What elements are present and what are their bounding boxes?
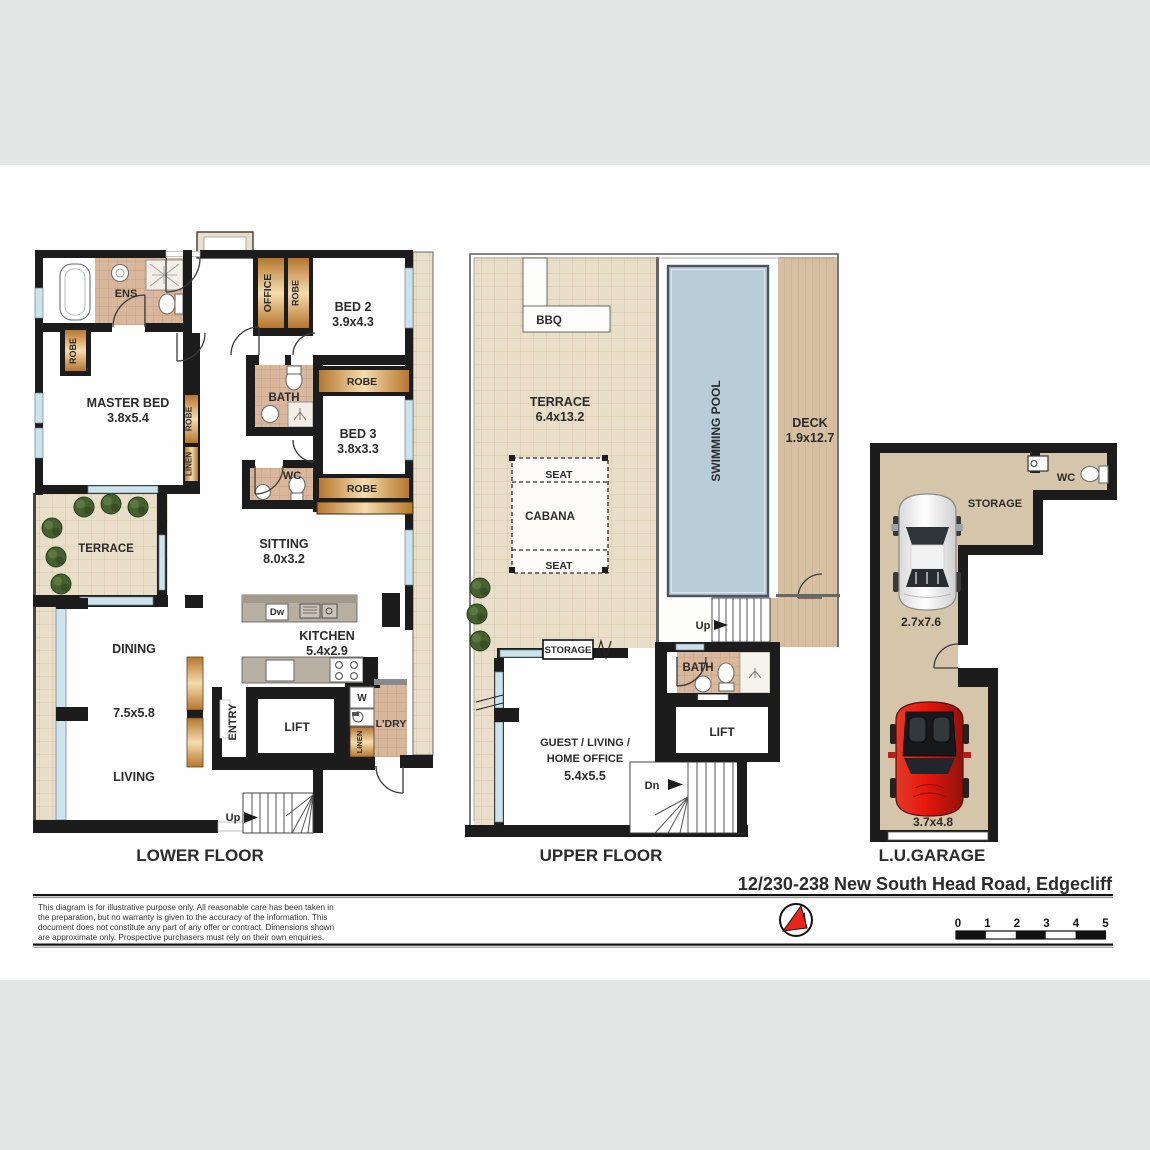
lower-floor-title: LOWER FLOOR xyxy=(136,846,263,865)
hall-robe-label: ROBE xyxy=(184,406,194,431)
sitting-dims: 8.0x3.2 xyxy=(263,552,305,566)
lower-terrace-label: TERRACE xyxy=(78,543,134,555)
laundry-door-arc xyxy=(376,766,403,793)
disclaimer-line-3: document does not constitute any part of… xyxy=(38,923,335,932)
garage-space1-dims: 2.7x7.6 xyxy=(901,615,941,629)
bath-basin xyxy=(262,406,279,423)
bed3-robe-label: ROBE xyxy=(347,483,377,495)
wc-label: WC xyxy=(283,470,301,482)
bath-door-arc xyxy=(293,333,315,355)
lower-stairs xyxy=(243,793,313,833)
floorplan-drawing: ENS MASTER BED 3.8x5.4 ROBE ROBE LINEN O… xyxy=(0,0,1150,1150)
master-bed-dims: 3.8x5.4 xyxy=(107,411,149,425)
dryer xyxy=(350,709,374,726)
address: 12/230-238 New South Head Road, Edgeclif… xyxy=(738,874,1113,894)
floorplan-page: { "header": { "address": "12/230-238 New… xyxy=(0,0,1150,1150)
bed2-label: BED 2 xyxy=(335,300,372,314)
white-car xyxy=(891,494,963,610)
upper-terrace-label: TERRACE xyxy=(530,395,590,409)
lower-lift-label: LIFT xyxy=(284,720,310,734)
fridge xyxy=(266,660,294,681)
washer-label: W xyxy=(357,693,367,704)
cooktop xyxy=(330,658,363,682)
garage-plan: WC STORAGE 2.7x7.6 3.7x4.8 L.U.GARAGE xyxy=(870,443,1117,865)
scale-tick-2: 2 xyxy=(1014,918,1020,930)
ens-basin xyxy=(112,265,129,282)
rule-bottom xyxy=(33,944,1113,946)
bed2-dims: 3.9x4.3 xyxy=(332,315,374,329)
upper-floor-title: UPPER FLOOR xyxy=(540,846,663,865)
north-compass-icon: N xyxy=(780,904,812,936)
upper-lift-label: LIFT xyxy=(709,725,735,739)
upper-terrace-dims: 6.4x13.2 xyxy=(536,410,585,424)
island-cabinet xyxy=(187,657,203,710)
wc-basin xyxy=(256,485,271,500)
master-bed-label: MASTER BED xyxy=(87,396,170,410)
bathtub xyxy=(60,264,90,320)
bed3-cabinet xyxy=(317,502,413,514)
rule-top xyxy=(33,894,1113,896)
garage-title: L.U.GARAGE xyxy=(879,846,986,865)
red-car xyxy=(888,702,971,816)
hall-linen-label: LINEN xyxy=(185,452,194,476)
garage-wc-label: WC xyxy=(1057,472,1075,484)
bbq-bench xyxy=(523,258,547,312)
bbq-label: BBQ xyxy=(536,315,562,327)
lower-floor-plan: ENS MASTER BED 3.8x5.4 ROBE ROBE LINEN O… xyxy=(33,232,433,865)
guest-dims: 5.4x5.5 xyxy=(564,769,606,783)
bed2-robe-label: ROBE xyxy=(347,376,377,388)
seat-bottom-label: SEAT xyxy=(545,560,573,572)
master-robe-label: ROBE xyxy=(68,338,78,364)
living-label: LIVING xyxy=(113,770,155,784)
deck-label: DECK xyxy=(792,416,827,430)
office-label: OFFICE xyxy=(262,274,274,313)
bed3-door-arc xyxy=(293,440,315,462)
guest-label-2: HOME OFFICE xyxy=(547,753,623,765)
laundry-label: L'DRY xyxy=(376,718,407,730)
entry-label: ENTRY xyxy=(227,703,239,741)
disclaimer-line-4: are approximate only. Prospective purcha… xyxy=(38,933,324,942)
ens-toilet xyxy=(159,294,175,314)
scale-tick-5: 5 xyxy=(1102,918,1109,930)
deck-dims: 1.9x12.7 xyxy=(786,431,835,445)
scale-tick-1: 1 xyxy=(984,918,991,930)
guest-label-1: GUEST / LIVING / xyxy=(540,737,630,749)
dining-label: DINING xyxy=(112,642,156,656)
kitchen-label: KITCHEN xyxy=(299,629,355,643)
dn-label: Dn xyxy=(645,780,660,792)
footer: 12/230-238 New South Head Road, Edgeclif… xyxy=(33,874,1113,948)
garage-storage-label: STORAGE xyxy=(968,498,1022,510)
lower-left-planter-strip xyxy=(36,605,58,831)
upper-floor-plan: BBQ TERRACE 6.4x13.2 SEAT CABANA SEAT SW… xyxy=(465,254,840,865)
cabana-label: CABANA xyxy=(525,511,575,523)
upper-stairs xyxy=(712,598,770,642)
garage-door xyxy=(888,832,988,840)
living-dims: 7.5x5.8 xyxy=(113,706,155,720)
garage-toilet xyxy=(1081,467,1099,482)
dn-stairs xyxy=(630,762,745,833)
upper-up-label: Up xyxy=(696,620,711,632)
sitting-label: SITTING xyxy=(259,537,308,551)
lower-left-outer-line xyxy=(33,493,36,833)
scale-tick-4: 4 xyxy=(1073,918,1080,930)
upper-storage-label: STORAGE xyxy=(545,645,592,656)
lower-up-label: Up xyxy=(226,812,241,824)
kitchen-dims: 5.4x2.9 xyxy=(306,644,348,658)
laundry-linen-label: LINEN xyxy=(355,731,364,754)
bed3-label: BED 3 xyxy=(340,427,377,441)
scale-bar: 0 1 2 3 4 5 xyxy=(955,918,1110,939)
bed3-dims: 3.8x3.3 xyxy=(337,442,379,456)
disclaimer: This diagram is for illustrative purpose… xyxy=(38,903,335,942)
sink xyxy=(300,604,320,618)
lower-side-terrace-strip xyxy=(413,252,433,755)
dishwasher-label: Dw xyxy=(270,607,285,618)
disclaimer-line-1: This diagram is for illustrative purpose… xyxy=(38,903,334,912)
bath-label: BATH xyxy=(268,392,299,404)
office-robe-label: ROBE xyxy=(291,280,301,306)
upper-toilet xyxy=(718,663,734,683)
garage-space2-dims: 3.7x4.8 xyxy=(913,815,953,829)
scale-tick-3: 3 xyxy=(1043,918,1049,930)
upper-bath-label: BATH xyxy=(682,662,713,674)
seat-top-label: SEAT xyxy=(545,469,573,481)
ens-label: ENS xyxy=(115,288,138,300)
disclaimer-line-2: the preparation, but no warranty is give… xyxy=(38,913,327,922)
pool-label: SWIMMING POOL xyxy=(709,380,723,481)
scale-tick-0: 0 xyxy=(955,918,961,930)
